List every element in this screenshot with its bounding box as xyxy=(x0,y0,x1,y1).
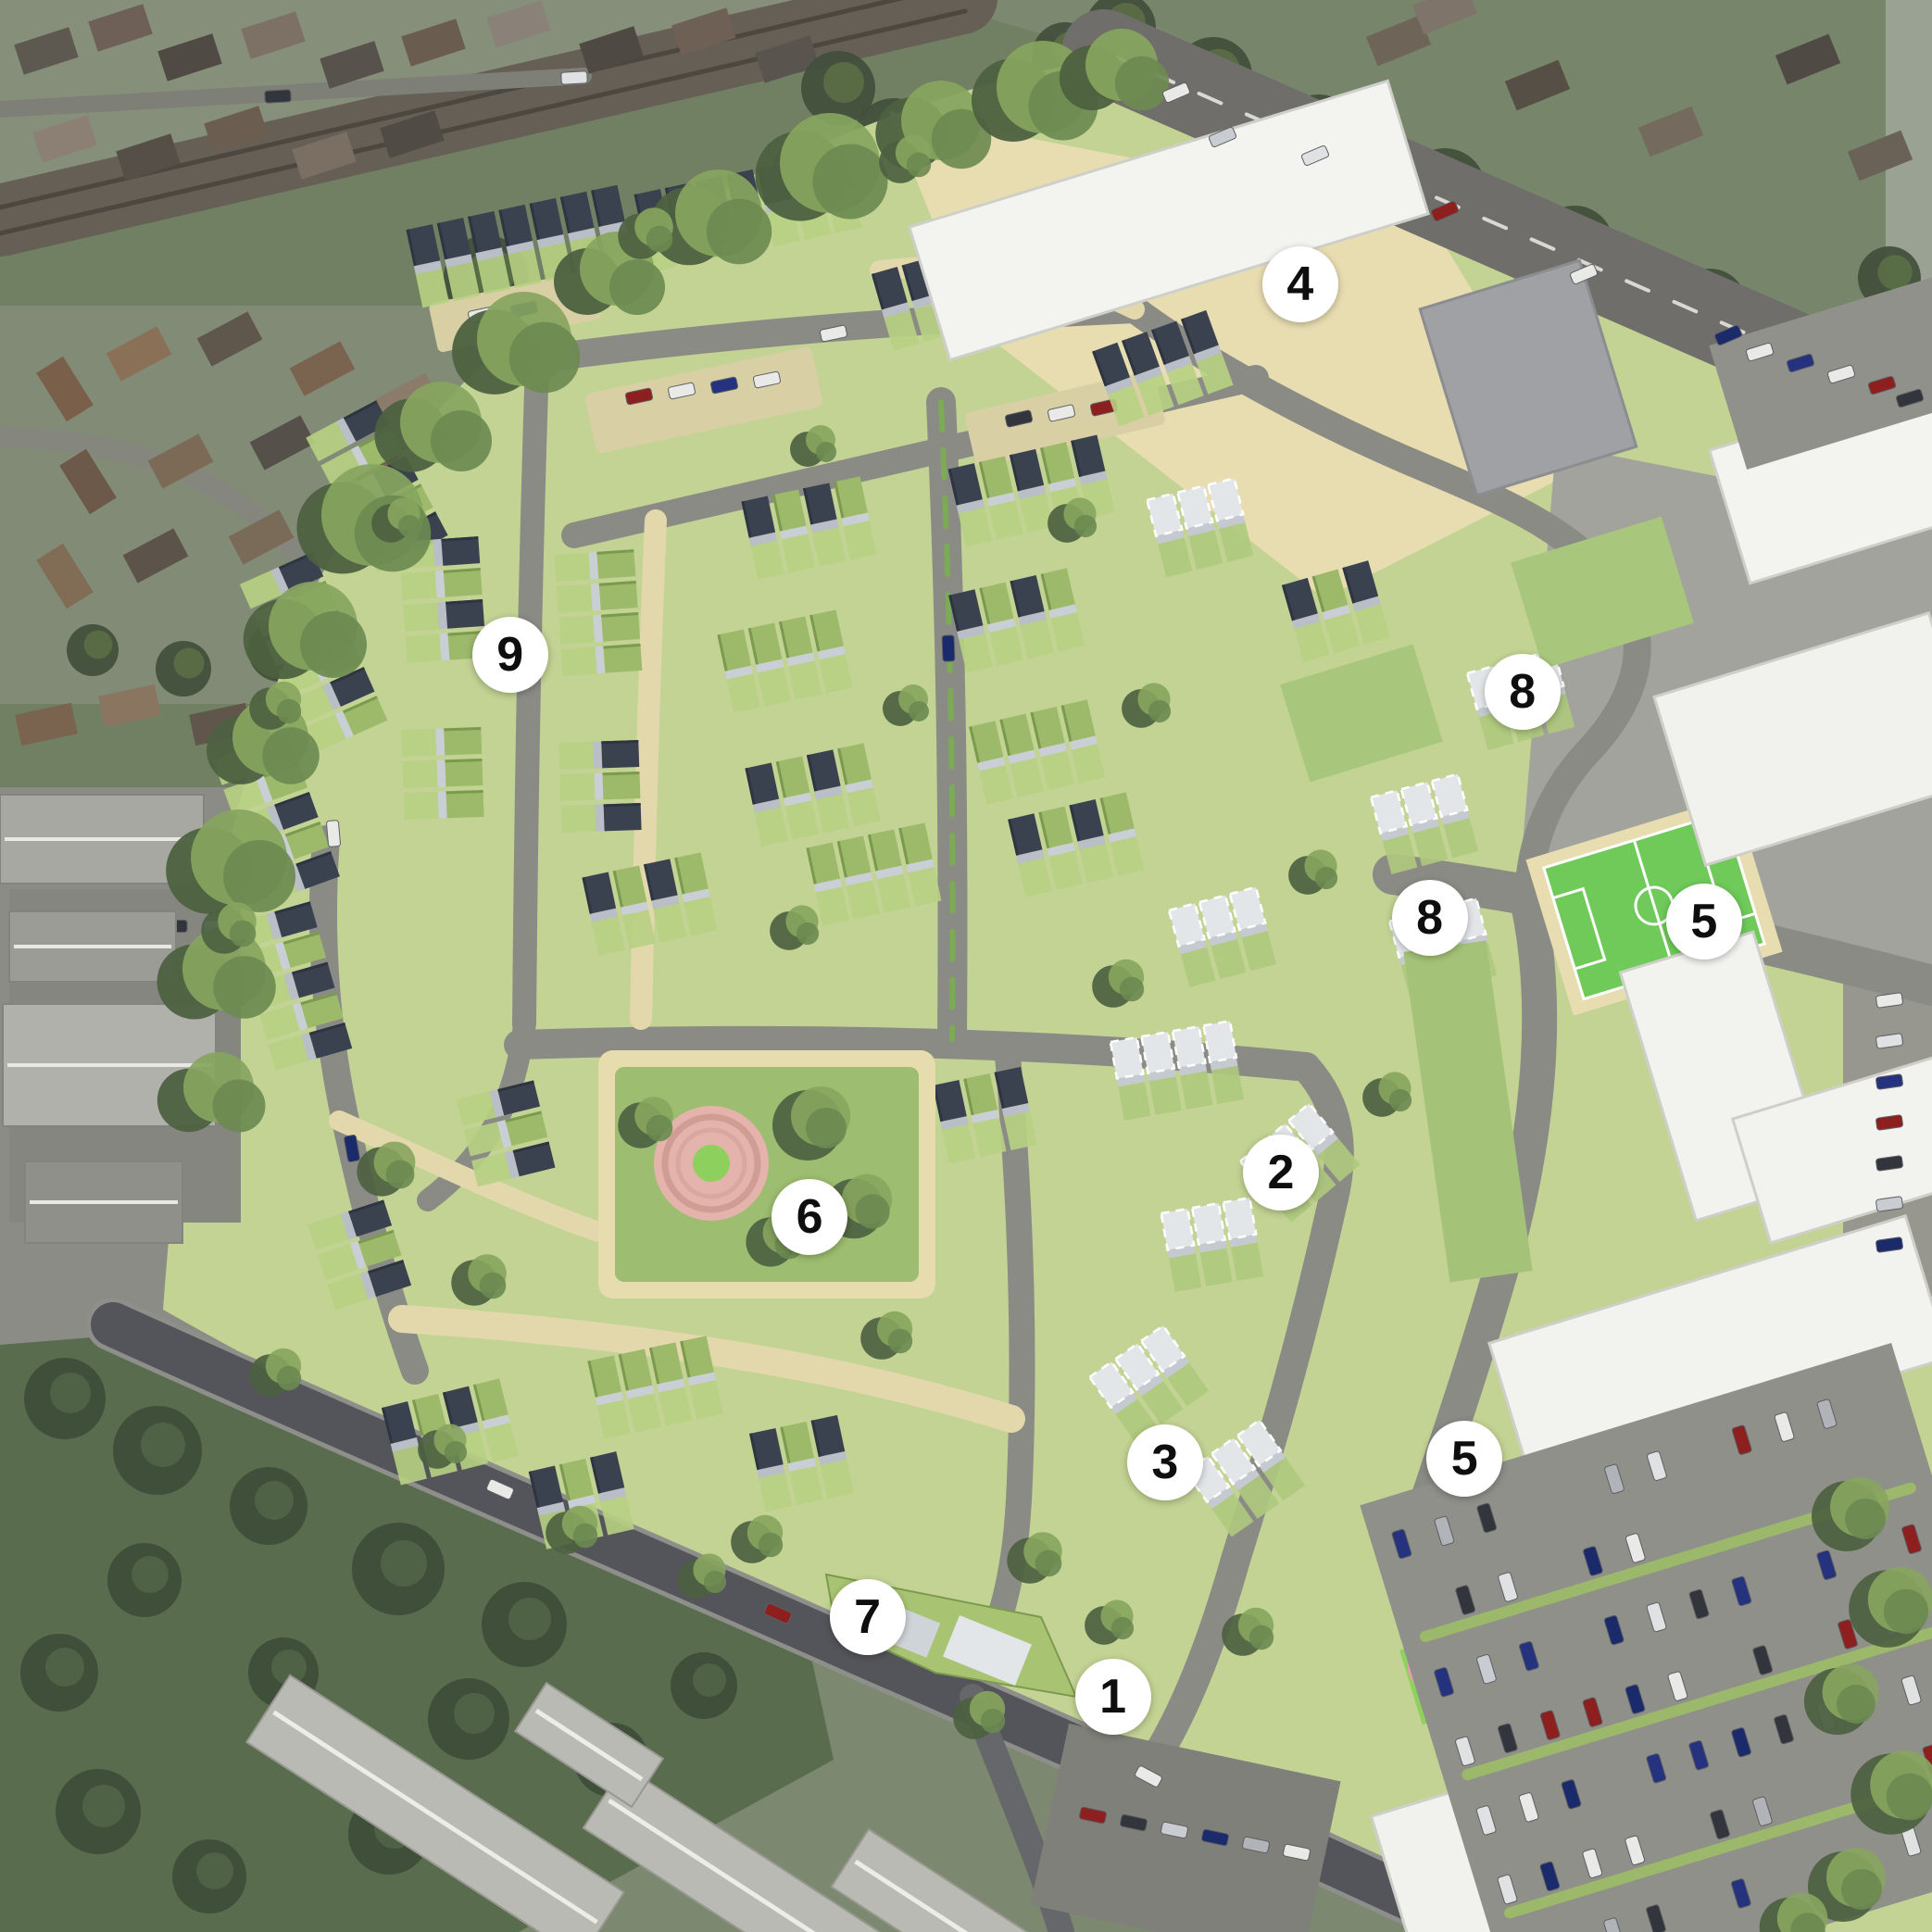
map-marker-label: 8 xyxy=(1416,894,1443,942)
map-marker-label: 3 xyxy=(1151,1438,1178,1487)
masterplan-figure: 49885263571 xyxy=(0,0,1932,1932)
map-marker-9: 9 xyxy=(472,617,548,693)
map-marker-label: 2 xyxy=(1268,1148,1295,1197)
map-marker-3: 3 xyxy=(1127,1424,1203,1500)
map-marker-label: 1 xyxy=(1099,1673,1126,1721)
map-marker-8: 8 xyxy=(1485,654,1561,730)
map-marker-label: 7 xyxy=(854,1593,881,1641)
map-marker-label: 8 xyxy=(1509,668,1536,716)
map-marker-2: 2 xyxy=(1243,1135,1319,1211)
map-marker-6: 6 xyxy=(772,1179,847,1255)
map-marker-5: 5 xyxy=(1666,884,1742,960)
map-marker-1: 1 xyxy=(1075,1659,1151,1735)
map-marker-label: 4 xyxy=(1286,260,1313,308)
map-marker-8: 8 xyxy=(1392,880,1468,956)
map-marker-label: 5 xyxy=(1451,1435,1478,1483)
map-marker-label: 9 xyxy=(496,631,523,679)
map-marker-label: 6 xyxy=(797,1193,823,1241)
map-marker-7: 7 xyxy=(830,1579,906,1655)
map-marker-5: 5 xyxy=(1426,1421,1502,1497)
map-marker-4: 4 xyxy=(1262,246,1338,322)
marker-layer: 49885263571 xyxy=(0,0,1932,1932)
map-marker-label: 5 xyxy=(1690,897,1717,946)
